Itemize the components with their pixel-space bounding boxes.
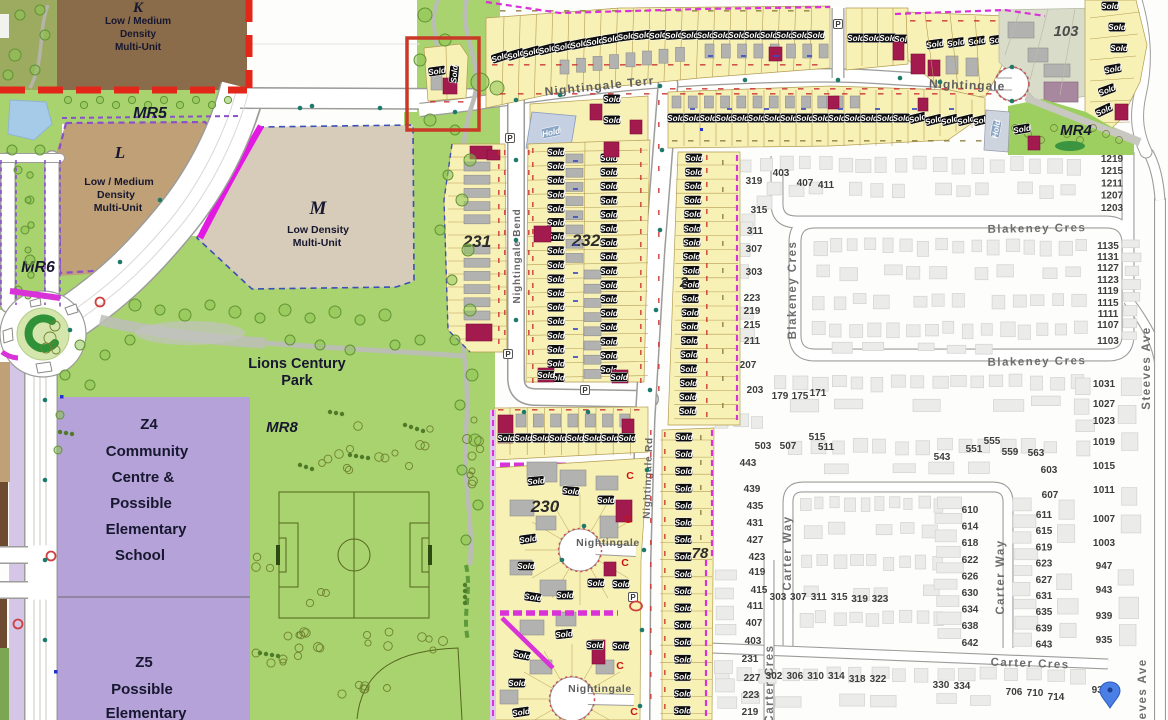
svg-text:219: 219	[744, 306, 761, 317]
svg-text:1127: 1127	[1097, 263, 1119, 274]
svg-text:Sold: Sold	[674, 587, 693, 596]
svg-text:Sold: Sold	[675, 433, 694, 442]
svg-text:Sold: Sold	[684, 182, 703, 191]
svg-text:439: 439	[744, 484, 761, 495]
svg-text:Sold: Sold	[517, 562, 536, 571]
svg-text:Carter Way: Carter Way	[995, 539, 1007, 614]
svg-text:227: 227	[744, 673, 761, 684]
svg-text:1031: 1031	[1093, 379, 1116, 390]
svg-text:Sold: Sold	[514, 434, 533, 443]
svg-text:Possible: Possible	[111, 681, 173, 698]
svg-text:Sold: Sold	[597, 496, 616, 505]
svg-text:1103: 1103	[1097, 336, 1119, 347]
svg-text:Sold: Sold	[681, 309, 700, 318]
svg-text:706: 706	[1006, 687, 1023, 698]
svg-text:Sold: Sold	[547, 162, 566, 171]
svg-text:303: 303	[770, 592, 787, 603]
svg-text:Sold: Sold	[685, 168, 704, 177]
svg-text:Sold: Sold	[600, 323, 619, 332]
svg-text:Sold: Sold	[610, 373, 629, 382]
svg-text:Sold: Sold	[680, 379, 699, 388]
svg-text:610: 610	[962, 505, 979, 516]
svg-text:Sold: Sold	[683, 238, 702, 247]
svg-text:Sold: Sold	[675, 484, 694, 493]
svg-text:638: 638	[962, 621, 979, 632]
svg-text:Density: Density	[97, 189, 135, 201]
svg-text:Sold: Sold	[675, 519, 694, 528]
svg-text:427: 427	[747, 535, 764, 546]
svg-text:411: 411	[747, 601, 764, 612]
svg-text:207: 207	[740, 360, 757, 371]
svg-text:Sold: Sold	[603, 116, 622, 125]
svg-text:419: 419	[749, 567, 766, 578]
svg-text:Sold: Sold	[600, 182, 619, 191]
svg-text:P: P	[582, 386, 588, 395]
svg-text:Multi-Unit: Multi-Unit	[293, 237, 342, 249]
svg-text:423: 423	[749, 552, 766, 563]
svg-text:627: 627	[1036, 575, 1053, 586]
svg-text:511: 511	[818, 442, 835, 453]
svg-text:Steeves Ave: Steeves Ave	[1141, 326, 1153, 409]
svg-text:Sold: Sold	[674, 672, 693, 681]
svg-text:639: 639	[1036, 623, 1053, 634]
svg-text:C: C	[626, 470, 634, 482]
svg-text:319: 319	[746, 176, 763, 187]
svg-text:503: 503	[755, 441, 772, 452]
svg-text:Sold: Sold	[674, 707, 693, 716]
svg-text:1003: 1003	[1093, 538, 1116, 549]
svg-text:Sold: Sold	[674, 690, 693, 699]
svg-text:635: 635	[1036, 607, 1053, 618]
svg-text:223: 223	[743, 690, 760, 701]
svg-text:Centre &: Centre &	[112, 469, 175, 486]
svg-text:Sold: Sold	[547, 148, 566, 157]
svg-text:Nightingale: Nightingale	[576, 537, 640, 549]
svg-text:Possible: Possible	[110, 495, 172, 512]
svg-text:Sold: Sold	[600, 225, 619, 234]
svg-text:330: 330	[933, 680, 950, 691]
svg-text:Density: Density	[120, 29, 157, 40]
svg-text:C: C	[621, 557, 629, 569]
svg-text:Elementary: Elementary	[106, 705, 188, 720]
svg-text:322: 322	[870, 674, 887, 685]
svg-text:Sold: Sold	[547, 360, 566, 369]
svg-text:Sold: Sold	[1101, 2, 1120, 11]
svg-text:Sold: Sold	[807, 31, 826, 40]
svg-text:MR4: MR4	[1060, 122, 1092, 139]
svg-text:L: L	[114, 143, 125, 162]
svg-text:175: 175	[792, 391, 809, 402]
svg-text:179: 179	[772, 391, 789, 402]
svg-text:Sold: Sold	[600, 295, 619, 304]
svg-text:215: 215	[744, 320, 761, 331]
svg-text:Carter Cres: Carter Cres	[764, 644, 776, 720]
svg-text:Sold: Sold	[547, 261, 566, 270]
svg-text:Sold: Sold	[600, 309, 619, 318]
svg-text:318: 318	[849, 674, 866, 685]
svg-text:Sold: Sold	[681, 337, 700, 346]
svg-text:Low Density: Low Density	[287, 224, 349, 236]
svg-text:Sold: Sold	[675, 450, 694, 459]
svg-text:Sold: Sold	[547, 204, 566, 213]
svg-text:Sold: Sold	[600, 239, 619, 248]
svg-text:C: C	[624, 514, 632, 526]
svg-text:634: 634	[962, 605, 979, 616]
svg-text:507: 507	[780, 441, 797, 452]
svg-text:710: 710	[1027, 688, 1044, 699]
svg-text:M: M	[309, 198, 328, 219]
svg-text:411: 411	[818, 180, 835, 191]
svg-text:Sold: Sold	[681, 323, 700, 332]
svg-text:Sold: Sold	[612, 642, 631, 651]
svg-text:Sold: Sold	[600, 351, 619, 360]
svg-text:Sold: Sold	[674, 621, 693, 630]
svg-text:Blakeney Cres: Blakeney Cres	[787, 241, 799, 340]
svg-text:Sold: Sold	[674, 570, 693, 579]
svg-text:1111: 1111	[1098, 309, 1119, 320]
svg-text:563: 563	[1028, 448, 1045, 459]
svg-text:230: 230	[530, 497, 560, 516]
svg-text:1011: 1011	[1093, 485, 1115, 496]
svg-text:943: 943	[1096, 585, 1113, 596]
svg-text:1007: 1007	[1093, 514, 1116, 525]
svg-text:Sold: Sold	[556, 591, 575, 600]
svg-text:1027: 1027	[1093, 399, 1116, 410]
svg-text:Nightingale Bend: Nightingale Bend	[512, 208, 523, 303]
svg-text:Sold: Sold	[547, 331, 566, 340]
svg-text:334: 334	[954, 681, 971, 692]
svg-text:K: K	[132, 0, 144, 16]
svg-text:1107: 1107	[1097, 320, 1119, 331]
svg-text:Sold: Sold	[618, 434, 637, 443]
svg-text:435: 435	[747, 501, 764, 512]
svg-text:Sold: Sold	[532, 434, 551, 443]
svg-text:315: 315	[831, 592, 848, 603]
svg-text:315: 315	[751, 205, 768, 216]
svg-text:P: P	[507, 134, 513, 143]
svg-text:232: 232	[571, 231, 601, 250]
svg-text:407: 407	[797, 178, 814, 189]
svg-text:Sold: Sold	[508, 679, 527, 688]
svg-text:203: 203	[747, 385, 764, 396]
svg-text:Multi-Unit: Multi-Unit	[115, 42, 162, 53]
svg-text:Z5: Z5	[135, 654, 153, 671]
svg-text:Sold: Sold	[674, 553, 693, 562]
svg-text:Sold: Sold	[675, 536, 694, 545]
svg-text:623: 623	[1036, 559, 1053, 570]
svg-text:C: C	[630, 706, 638, 718]
svg-text:Low / Medium: Low / Medium	[84, 176, 153, 188]
svg-text:103: 103	[1053, 23, 1079, 40]
svg-text:MR8: MR8	[266, 419, 298, 436]
svg-text:Community: Community	[106, 443, 189, 460]
svg-text:Sold: Sold	[683, 224, 702, 233]
svg-text:Sold: Sold	[683, 252, 702, 261]
svg-text:1023: 1023	[1093, 416, 1116, 427]
svg-text:618: 618	[962, 538, 979, 549]
svg-text:Nightingale: Nightingale	[568, 683, 632, 695]
svg-text:939: 939	[1096, 611, 1113, 622]
svg-text:Sold: Sold	[584, 434, 603, 443]
svg-text:307: 307	[790, 592, 807, 603]
svg-text:Sold: Sold	[547, 289, 566, 298]
svg-text:615: 615	[1036, 526, 1053, 537]
svg-text:Sold: Sold	[527, 476, 546, 487]
svg-text:631: 631	[1036, 591, 1053, 602]
svg-text:614: 614	[962, 522, 979, 533]
svg-text:1119: 1119	[1097, 286, 1119, 297]
svg-text:622: 622	[962, 555, 979, 566]
svg-text:947: 947	[1096, 561, 1113, 572]
svg-text:Sold: Sold	[600, 253, 619, 262]
svg-text:223: 223	[744, 293, 761, 304]
svg-text:306: 306	[786, 671, 803, 682]
svg-text:78: 78	[692, 545, 709, 562]
svg-text:Sold: Sold	[674, 655, 693, 664]
svg-text:Sold: Sold	[679, 393, 698, 402]
svg-text:Blakeney Cres: Blakeney Cres	[987, 222, 1086, 236]
svg-text:School: School	[115, 547, 165, 564]
svg-text:211: 211	[744, 336, 761, 347]
svg-text:1123: 1123	[1097, 275, 1119, 286]
svg-text:Sold: Sold	[684, 196, 703, 205]
svg-text:Sold: Sold	[600, 281, 619, 290]
svg-text:Elementary: Elementary	[106, 521, 188, 538]
svg-text:171: 171	[810, 388, 827, 399]
svg-text:Sold: Sold	[449, 64, 460, 83]
svg-text:1211: 1211	[1101, 178, 1123, 189]
svg-text:MR5: MR5	[133, 105, 168, 122]
svg-text:Sold: Sold	[679, 407, 698, 416]
svg-text:Sold: Sold	[566, 434, 585, 443]
svg-text:P: P	[505, 350, 511, 359]
svg-text:323: 323	[872, 594, 889, 605]
svg-text:1019: 1019	[1093, 437, 1116, 448]
svg-text:Sold: Sold	[547, 247, 566, 256]
svg-text:Steeves Ave: Steeves Ave	[1137, 658, 1149, 720]
svg-text:415: 415	[751, 585, 768, 596]
svg-text:626: 626	[962, 571, 979, 582]
svg-text:Park: Park	[281, 373, 313, 389]
svg-text:Sold: Sold	[586, 641, 605, 650]
svg-text:Carter Way: Carter Way	[782, 515, 794, 590]
svg-text:1135: 1135	[1097, 241, 1119, 252]
svg-text:P: P	[835, 20, 841, 29]
svg-text:Sold: Sold	[600, 337, 619, 346]
svg-text:Sold: Sold	[682, 295, 701, 304]
svg-text:619: 619	[1036, 542, 1053, 553]
svg-text:403: 403	[773, 168, 790, 179]
svg-text:1203: 1203	[1101, 203, 1124, 214]
svg-text:231: 231	[742, 654, 759, 665]
svg-text:Sold: Sold	[547, 317, 566, 326]
svg-text:Multi-Unit: Multi-Unit	[94, 202, 143, 214]
svg-text:319: 319	[851, 594, 868, 605]
svg-text:302: 302	[766, 671, 783, 682]
svg-text:Sold: Sold	[547, 345, 566, 354]
svg-text:Sold: Sold	[547, 275, 566, 284]
svg-text:1115: 1115	[1097, 298, 1119, 309]
svg-text:607: 607	[1042, 490, 1059, 501]
svg-text:Sold: Sold	[547, 190, 566, 199]
svg-text:1207: 1207	[1101, 191, 1124, 202]
svg-text:Low / Medium: Low / Medium	[105, 16, 171, 27]
svg-text:Sold: Sold	[603, 95, 622, 104]
svg-text:Sold: Sold	[549, 434, 568, 443]
svg-text:Sold: Sold	[600, 168, 619, 177]
svg-text:603: 603	[1041, 465, 1058, 476]
svg-text:Sold: Sold	[497, 434, 516, 443]
svg-text:219: 219	[742, 707, 759, 718]
svg-text:714: 714	[1048, 692, 1065, 703]
svg-text:1215: 1215	[1101, 166, 1124, 177]
svg-text:611: 611	[1036, 510, 1053, 521]
svg-text:2: 2	[679, 274, 689, 291]
svg-text:443: 443	[740, 458, 757, 469]
svg-text:Sold: Sold	[562, 486, 581, 497]
svg-text:Sold: Sold	[601, 434, 620, 443]
svg-text:403: 403	[745, 636, 762, 647]
svg-text:Sold: Sold	[600, 210, 619, 219]
svg-text:Sold: Sold	[685, 154, 704, 163]
svg-text:642: 642	[962, 638, 979, 649]
svg-text:1015: 1015	[1093, 461, 1116, 472]
svg-text:Nightingale: Nightingale	[929, 77, 1006, 94]
svg-text:310: 310	[807, 671, 824, 682]
svg-text:Sold: Sold	[675, 467, 694, 476]
svg-text:311: 311	[811, 592, 828, 603]
svg-text:Sold: Sold	[684, 210, 703, 219]
svg-text:Sold: Sold	[547, 303, 566, 312]
svg-text:551: 551	[966, 444, 983, 455]
svg-text:C: C	[616, 660, 624, 672]
svg-text:643: 643	[1036, 640, 1053, 651]
svg-text:Sold: Sold	[547, 176, 566, 185]
svg-text:555: 555	[984, 436, 1001, 447]
svg-text:559: 559	[1002, 447, 1019, 458]
svg-text:543: 543	[934, 452, 951, 463]
svg-text:Sold: Sold	[600, 196, 619, 205]
svg-text:407: 407	[746, 618, 763, 629]
svg-text:Sold: Sold	[674, 638, 693, 647]
svg-text:Sold: Sold	[675, 501, 694, 510]
svg-text:Z4: Z4	[140, 416, 158, 433]
svg-text:Sold: Sold	[587, 579, 606, 588]
svg-text:1131: 1131	[1097, 252, 1119, 263]
svg-text:Blakeney Cres: Blakeney Cres	[987, 355, 1086, 369]
svg-text:935: 935	[1096, 635, 1113, 646]
svg-text:311: 311	[747, 226, 764, 237]
svg-text:Sold: Sold	[680, 351, 699, 360]
svg-text:Sold: Sold	[674, 604, 693, 613]
svg-text:630: 630	[962, 588, 979, 599]
svg-text:303: 303	[746, 267, 763, 278]
svg-text:Sold: Sold	[537, 371, 556, 380]
svg-text:Sold: Sold	[1110, 44, 1129, 53]
svg-text:Lions Century: Lions Century	[248, 356, 345, 372]
svg-text:314: 314	[828, 671, 845, 682]
svg-text:Sold: Sold	[680, 365, 699, 374]
svg-text:Sold: Sold	[1108, 23, 1127, 32]
svg-text:307: 307	[746, 244, 763, 255]
svg-text:Sold: Sold	[612, 580, 631, 589]
svg-text:1219: 1219	[1101, 154, 1124, 165]
svg-text:431: 431	[747, 518, 764, 529]
svg-text:Sold: Sold	[600, 267, 619, 276]
